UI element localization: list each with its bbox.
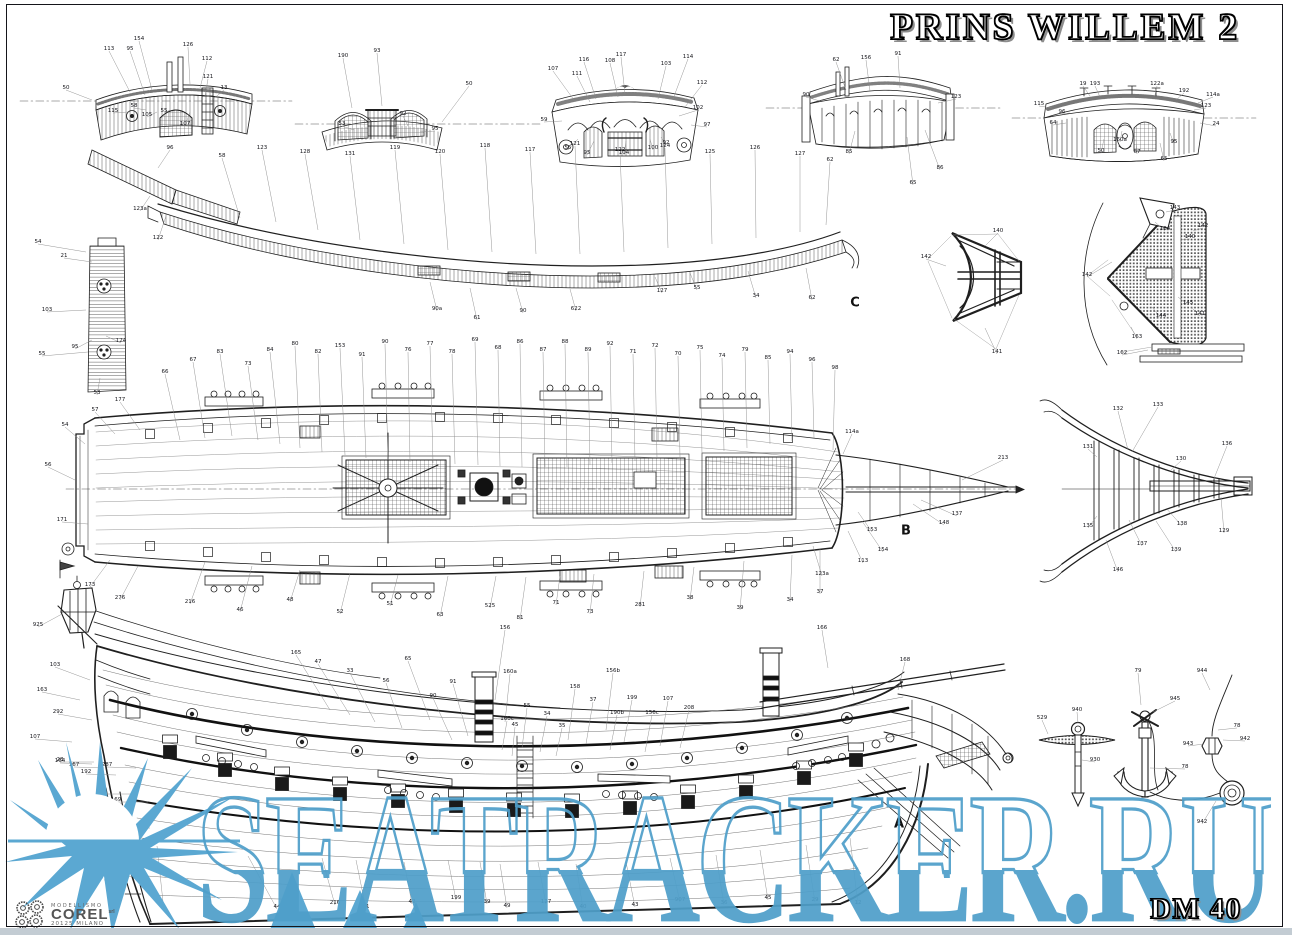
callout: 942 <box>1197 819 1208 825</box>
callout: 92 <box>607 341 614 347</box>
callout: 79 <box>101 875 108 881</box>
callout: 78 <box>449 349 456 355</box>
callout: 127 <box>541 899 552 905</box>
callout: 33 <box>347 668 354 674</box>
callout: 51 <box>387 601 394 607</box>
callout: 114a <box>845 429 859 435</box>
callout: 86 <box>937 165 944 171</box>
callout: 122a <box>1150 81 1164 87</box>
callout: 66 <box>162 369 169 375</box>
callout: 138 <box>1177 521 1188 527</box>
callout: 100 <box>648 145 659 151</box>
callout: 160a <box>1113 137 1127 143</box>
callout: 199 <box>451 895 462 901</box>
callout: 67 <box>190 357 197 363</box>
callout: 190 <box>338 53 349 59</box>
callout: 160a <box>503 669 517 675</box>
callout: 153 <box>335 343 346 349</box>
callout: 50 <box>63 85 70 91</box>
callout: 129 <box>1219 528 1230 534</box>
callout: 105 <box>142 112 153 118</box>
callout: 169 <box>111 797 122 803</box>
callout: 133 <box>1153 402 1164 408</box>
callout: 92 <box>400 111 407 117</box>
callout: 126 <box>750 145 761 151</box>
logo-line-corel: CORELsrl <box>51 909 115 922</box>
callout: 142 <box>1082 272 1093 278</box>
callout: 123a <box>133 206 147 212</box>
section-label-A: A <box>894 817 904 832</box>
callout: 113 <box>104 46 115 52</box>
callout: 141 <box>992 349 1003 355</box>
callout: 111 <box>572 71 583 77</box>
callout: 43 <box>632 902 639 908</box>
callout: 42 <box>409 899 416 905</box>
sheet-number: DM 40 <box>1150 894 1242 926</box>
callout: 192 <box>81 769 92 775</box>
callout: 103 <box>661 61 672 67</box>
callout: 172 <box>84 854 95 860</box>
callout: 95 <box>584 150 591 156</box>
callout: 146 <box>1113 567 1124 573</box>
callout: 143 <box>1170 205 1181 211</box>
callout: 77 <box>427 341 434 347</box>
callout: 36 <box>721 900 728 906</box>
callout: 89 <box>585 347 592 353</box>
callout: 52 <box>337 609 344 615</box>
callout: 175 <box>112 824 123 830</box>
callout: 53 <box>339 121 346 127</box>
callout: 167 <box>69 762 80 768</box>
callout: 96 <box>1059 109 1066 115</box>
callout: 91 <box>359 352 366 358</box>
logo-text: MODELLISMO CORELsrl 20125 MILANO <box>51 903 115 928</box>
callout: 907 <box>675 897 686 903</box>
callout: 90 <box>803 92 810 98</box>
callout: 49 <box>504 903 511 909</box>
callout: 153 <box>867 527 878 533</box>
callout: 107 <box>180 121 191 127</box>
callout: 281 <box>635 602 646 608</box>
callout: 112 <box>202 56 213 62</box>
callout: 34 <box>787 597 794 603</box>
callout: 86 <box>517 339 524 345</box>
callout: 122 <box>153 235 164 241</box>
callout: 140 <box>1185 234 1196 240</box>
callout: 525 <box>485 603 496 609</box>
callout: 123 <box>951 94 962 100</box>
callout: 123a <box>815 571 829 577</box>
callout: 39 <box>737 605 744 611</box>
callout: 55 <box>39 351 46 357</box>
callout: 108 <box>605 58 616 64</box>
callout: 176 <box>97 789 108 795</box>
callout: 137 <box>1137 541 1148 547</box>
callout: 95 <box>72 344 79 350</box>
callout: 38 <box>687 595 694 601</box>
callout: 199 <box>627 695 638 701</box>
callout: 124 <box>660 143 671 149</box>
callout: 132 <box>1113 406 1124 412</box>
callout: 164 <box>55 758 66 764</box>
callout: 115 <box>1034 101 1045 107</box>
callout: 76 <box>405 347 412 353</box>
callout: 90 <box>520 308 527 314</box>
callout: 113 <box>858 558 869 564</box>
callout: 34 <box>544 711 551 717</box>
callout: 125 <box>705 149 716 155</box>
callout: 80 <box>292 341 299 347</box>
callout: 166 <box>817 625 828 631</box>
section-label-B: B <box>901 524 911 539</box>
callout: 61 <box>474 315 481 321</box>
callout: 95 <box>432 126 439 132</box>
callout: 45 <box>512 722 519 728</box>
callout: 71 <box>630 349 637 355</box>
callout: 114a <box>1206 92 1220 98</box>
callout: 84 <box>267 347 274 353</box>
callout: 55 <box>161 108 168 114</box>
callout: 529 <box>1037 715 1048 721</box>
callout: 13 <box>221 85 228 91</box>
callout: 117 <box>525 147 536 153</box>
callout: 173 <box>111 854 122 860</box>
callout: 171 <box>57 517 68 523</box>
callout: 128 <box>300 149 311 155</box>
callout: 193 <box>1090 81 1101 87</box>
callout: 95 <box>1171 139 1178 145</box>
callout: 97 <box>704 122 711 128</box>
callout: 12 <box>855 900 862 906</box>
callout: 944 <box>1197 668 1208 674</box>
callout: 158 <box>570 684 581 690</box>
callout: 72 <box>652 343 659 349</box>
callout: 54 <box>35 239 42 245</box>
callout: 79 <box>742 347 749 353</box>
callout: 123 <box>257 145 268 151</box>
callout: 65 <box>910 180 917 186</box>
callout: 73 <box>245 361 252 367</box>
callout: 62 <box>833 57 840 63</box>
callout: 56 <box>45 462 52 468</box>
callout: 58 <box>131 103 138 109</box>
callout: 95 <box>127 46 134 52</box>
callout: 57 <box>92 407 99 413</box>
callout: 54 <box>62 422 69 428</box>
callout: 107 <box>30 734 41 740</box>
callout: 107 <box>663 696 674 702</box>
callout: 156 <box>500 625 511 631</box>
callout: 37 <box>817 589 824 595</box>
callout: 63 <box>437 612 444 618</box>
callout: 55 <box>694 285 701 291</box>
callout: 59 <box>541 117 548 123</box>
callout: 55 <box>524 703 531 709</box>
callout: 78 <box>1182 764 1189 770</box>
callout: 120 <box>435 149 446 155</box>
callout: 78 <box>1234 723 1241 729</box>
callout: 19 <box>1080 81 1087 87</box>
callout: 121 <box>203 74 214 80</box>
callout: 142 <box>921 254 932 260</box>
callout: 75 <box>697 345 704 351</box>
callout: 131 <box>1083 444 1094 450</box>
callout: 74 <box>719 353 726 359</box>
callout: 945 <box>1170 696 1181 702</box>
callout: 131 <box>345 151 356 157</box>
callout: 1 <box>162 906 166 912</box>
callout: 943 <box>1183 741 1194 747</box>
callout: 56 <box>383 678 390 684</box>
callout: 190b <box>610 710 624 716</box>
callout: 145 <box>1183 300 1194 306</box>
callout: 163 <box>37 687 48 693</box>
callout: 45 <box>765 895 772 901</box>
callout: 119 <box>390 145 401 151</box>
callout: 123 <box>1201 103 1212 109</box>
callout: 94 <box>787 349 794 355</box>
callout: 73 <box>587 609 594 615</box>
callout: 81 <box>517 615 524 621</box>
callout: 40 <box>580 904 587 910</box>
callout: 90a <box>432 306 442 312</box>
callout: 85 <box>846 149 853 155</box>
callout: 65 <box>1161 156 1168 162</box>
callout: 96 <box>809 357 816 363</box>
callout: 48 <box>287 597 294 603</box>
callout: 140 <box>993 228 1004 234</box>
callout: 117 <box>616 52 627 58</box>
callout: 144 <box>1156 313 1167 319</box>
callout: 127 <box>795 151 806 157</box>
callout: 62 <box>809 295 816 301</box>
callout: 276 <box>115 595 126 601</box>
callout: 142 <box>1198 223 1209 229</box>
callout: 192 <box>1179 88 1190 94</box>
callout: 930 <box>1090 757 1101 763</box>
callout: 148 <box>939 520 950 526</box>
page-title: PRINS WILLEM 2 <box>890 6 1240 49</box>
callout: 139 <box>1171 547 1182 553</box>
callout: 116 <box>579 57 590 63</box>
callout: 124 <box>116 338 127 344</box>
callout: 90 <box>430 693 437 699</box>
callout: 292 <box>53 709 64 715</box>
callout: 50 <box>1098 148 1105 154</box>
callout: 115 <box>108 108 119 114</box>
callout: 35 <box>559 723 566 729</box>
callout: 68 <box>495 345 502 351</box>
callout: 171 <box>112 848 123 854</box>
callout: 114 <box>683 54 694 60</box>
callout: 925 <box>33 622 44 628</box>
callout: 168 <box>900 657 911 663</box>
callout: 163 <box>1132 334 1143 340</box>
callout: 127 <box>657 288 668 294</box>
callout: 98 <box>832 365 839 371</box>
section-label-C: C <box>850 296 860 311</box>
callout: 162 <box>1117 350 1128 356</box>
callout: 102 <box>693 105 704 111</box>
callout: 29 <box>812 897 819 903</box>
callout: 208 <box>684 705 695 711</box>
callout: 173 <box>85 582 96 588</box>
callout: 622 <box>571 306 582 312</box>
callout: 50 <box>466 81 473 87</box>
callout: 126 <box>183 42 194 48</box>
callout: 940 <box>1072 707 1083 713</box>
callout: 177 <box>115 397 126 403</box>
callout: 34 <box>753 293 760 299</box>
callout: 154 <box>134 36 145 42</box>
callout: 165 <box>291 650 302 656</box>
callout: 83 <box>217 349 224 355</box>
callout: 112 <box>697 80 708 86</box>
callout: 122 <box>615 147 626 153</box>
callout: 216 <box>330 900 341 906</box>
callout: 24 <box>1213 121 1220 127</box>
callout: 216 <box>185 599 196 605</box>
callout: 88 <box>562 339 569 345</box>
callout: 130 <box>1176 456 1187 462</box>
callout: 96 <box>167 145 174 151</box>
callout: 21 <box>61 253 68 259</box>
callout: 37 <box>590 697 597 703</box>
callout: 164 <box>1160 226 1171 232</box>
callout: 91 <box>895 51 902 57</box>
callout: 942 <box>1240 736 1251 742</box>
callout: 79 <box>1135 668 1142 674</box>
callout: 39 <box>484 899 491 905</box>
callout: 70 <box>675 351 682 357</box>
callout: 136 <box>1222 441 1233 447</box>
callout: 137 <box>952 511 963 517</box>
callout: 107 <box>548 66 559 72</box>
callout: 44 <box>274 904 281 910</box>
callout: 121 <box>570 141 581 147</box>
callout: 154 <box>878 547 889 553</box>
callout: 156 <box>861 55 872 61</box>
callout: 41 <box>363 904 370 910</box>
callout: 213 <box>998 455 1009 461</box>
callout: 47 <box>315 659 322 665</box>
callout: 46 <box>237 607 244 613</box>
callout: 91 <box>450 679 457 685</box>
callout: 53 <box>94 390 101 396</box>
callout: 71 <box>553 600 560 606</box>
callout-numbers: 1139515412611212113501155810555107190935… <box>0 0 1292 935</box>
callout: 58 <box>219 153 226 159</box>
callout: 69 <box>472 337 479 343</box>
callout: 135 <box>1083 523 1094 529</box>
logo-suffix: srl <box>109 909 115 915</box>
callout: 103 <box>50 662 61 668</box>
callout: 64 <box>1050 120 1057 126</box>
callout: 62 <box>827 157 834 163</box>
callout: 156c <box>645 710 659 716</box>
callout: 141 <box>1195 311 1206 317</box>
callout: 87 <box>540 347 547 353</box>
plan-sheet: 1139515412611212113501155810555107190935… <box>0 0 1292 935</box>
callout: 156b <box>606 668 620 674</box>
callout: 85 <box>765 355 772 361</box>
callout: 65 <box>405 656 412 662</box>
page-edge <box>0 928 1292 935</box>
callout: 82 <box>315 349 322 355</box>
callout: 93 <box>374 48 381 54</box>
callout: 67 <box>1134 149 1141 155</box>
callout: 118 <box>480 143 491 149</box>
callout: 90 <box>382 339 389 345</box>
callout: 103 <box>42 307 53 313</box>
callout: 287 <box>102 762 113 768</box>
